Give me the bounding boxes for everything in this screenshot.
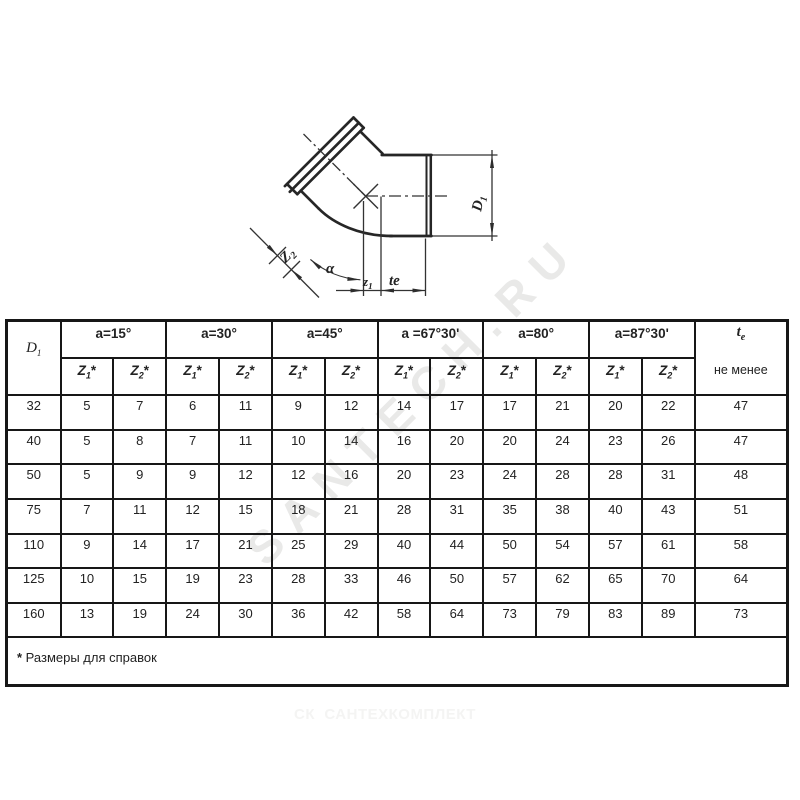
svg-text:α: α xyxy=(326,261,335,277)
svg-text:te: te xyxy=(389,273,400,289)
svg-text:z1: z1 xyxy=(362,274,373,291)
svg-text:D1: D1 xyxy=(469,194,490,214)
